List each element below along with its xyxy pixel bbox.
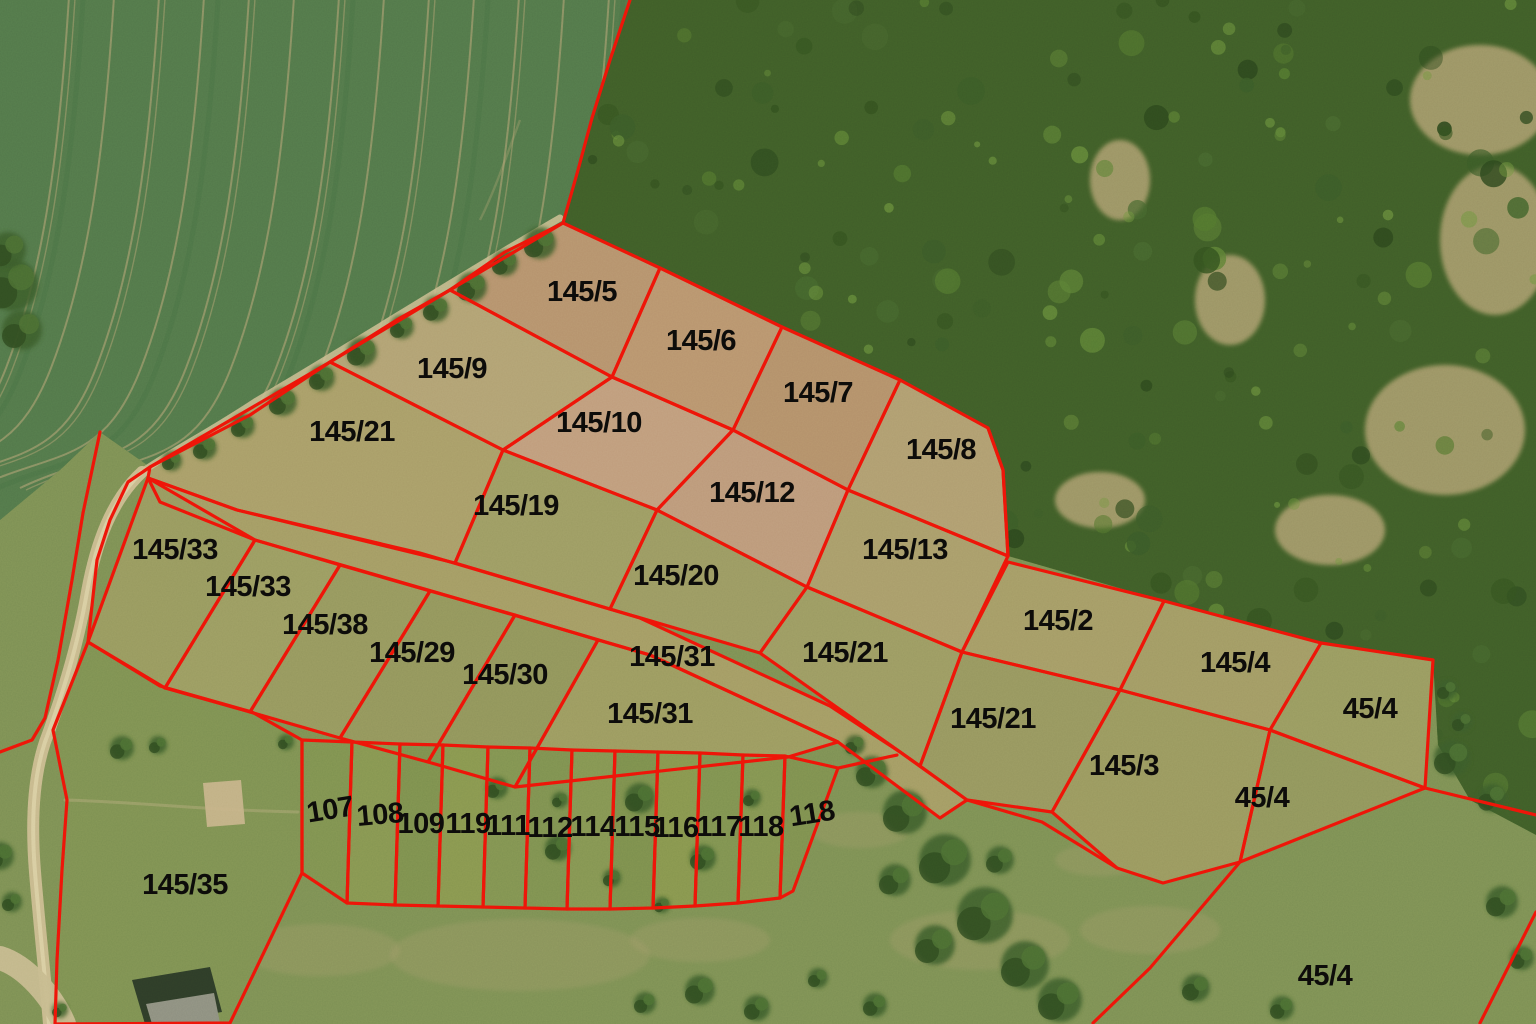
parcel-label-45-4: 45/4 xyxy=(1298,960,1353,992)
parcel-label-145-38: 145/38 xyxy=(282,609,368,641)
parcel-label-145-4: 145/4 xyxy=(1200,647,1270,679)
parcel-label-112: 112 xyxy=(527,812,572,844)
parcel-label-116: 116 xyxy=(653,812,699,844)
parcel-label-145-8: 145/8 xyxy=(906,434,976,466)
parcel-label-45-4: 45/4 xyxy=(1343,693,1398,725)
parcel-label-145-30: 145/30 xyxy=(462,659,548,691)
parcel-label-109: 109 xyxy=(398,808,445,840)
parcel-label-145-31: 145/31 xyxy=(607,698,693,730)
parcel-label-145-21: 145/21 xyxy=(950,703,1036,735)
parcel-label-145-9: 145/9 xyxy=(417,353,487,385)
map-stage: 145/5145/6145/7145/8145/9145/10145/12145… xyxy=(0,0,1536,1024)
parcel-label-145-19: 145/19 xyxy=(473,490,559,522)
parcel-label-118: 118 xyxy=(738,811,784,843)
parcel-label-145-10: 145/10 xyxy=(556,407,642,439)
parcel-label-145-3: 145/3 xyxy=(1089,750,1159,782)
parcel-label-145-5: 145/5 xyxy=(547,276,617,308)
parcel-label-145-33: 145/33 xyxy=(132,534,218,566)
parcel-label-145-21: 145/21 xyxy=(802,637,888,669)
parcel-label-45-4: 45/4 xyxy=(1235,782,1290,814)
photo-grain xyxy=(0,0,1536,1024)
parcel-label-145-33: 145/33 xyxy=(205,571,291,603)
parcel-label-145-20: 145/20 xyxy=(633,560,719,592)
cadastral-map: 145/5145/6145/7145/8145/9145/10145/12145… xyxy=(0,0,1536,1024)
parcel-label-111: 111 xyxy=(486,810,530,842)
parcel-label-117: 117 xyxy=(696,811,741,843)
parcel-label-145-29: 145/29 xyxy=(369,637,455,669)
parcel-label-145-21: 145/21 xyxy=(309,416,395,448)
parcel-label-145-12: 145/12 xyxy=(709,477,795,509)
parcel-label-145-35: 145/35 xyxy=(142,869,228,901)
parcel-label-145-6: 145/6 xyxy=(666,325,736,357)
parcel-label-145-2: 145/2 xyxy=(1023,605,1093,637)
parcel-label-145-13: 145/13 xyxy=(862,534,948,566)
parcel-label-145-7: 145/7 xyxy=(783,377,853,409)
parcel-label-119: 119 xyxy=(445,808,491,840)
parcel-label-145-31: 145/31 xyxy=(629,641,715,673)
parcel-label-114: 114 xyxy=(570,811,616,843)
